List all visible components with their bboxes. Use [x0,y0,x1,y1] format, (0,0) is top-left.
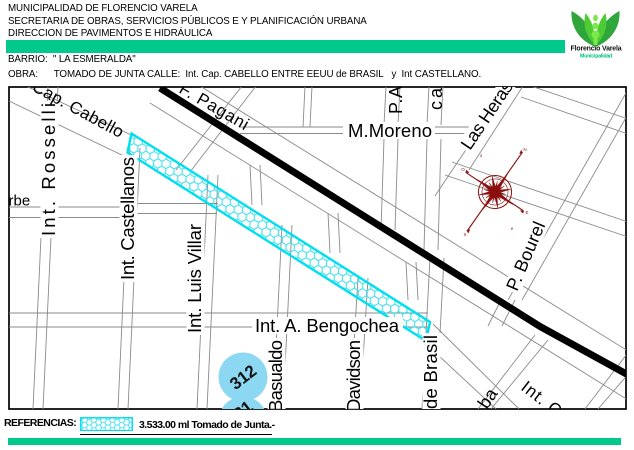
svg-text:Int. A. Bengochea: Int. A. Bengochea [255,315,400,336]
svg-text:P.A: P.A [386,86,406,114]
svg-text:Int. Luis Villar: Int. Luis Villar [184,224,205,333]
svg-text:de Brasil: de Brasil [420,335,441,409]
svg-text:Int. Castellanos: Int. Castellanos [117,157,138,280]
svg-text:ca: ca [426,87,446,110]
svg-text:Davidson: Davidson [343,340,364,412]
svg-text:E: E [525,210,528,215]
svg-text:rbe: rbe [9,193,31,210]
svg-text:O: O [461,167,465,172]
svg-text:S: S [463,232,466,237]
svg-text:Basualdo: Basualdo [265,340,286,412]
svg-text:M.Moreno: M.Moreno [348,120,432,141]
svg-text:N: N [523,147,526,152]
